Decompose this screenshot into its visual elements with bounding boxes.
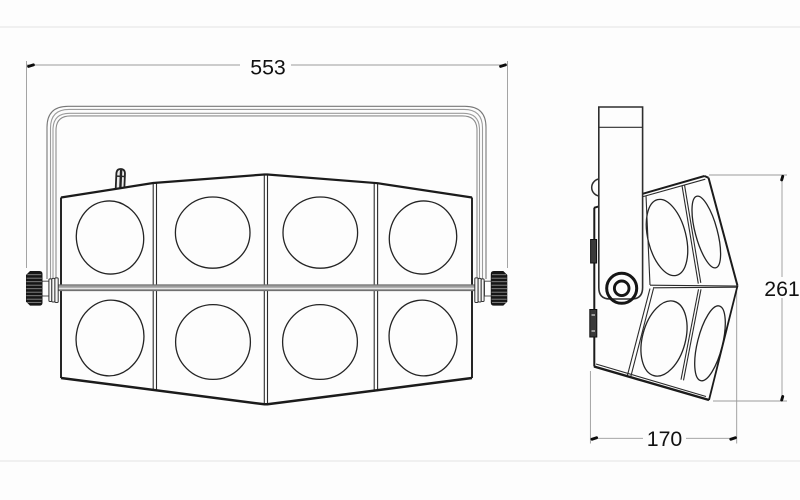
svg-text:553: 553 xyxy=(250,55,286,79)
svg-text:170: 170 xyxy=(647,427,683,451)
svg-text:261: 261 xyxy=(764,277,800,301)
